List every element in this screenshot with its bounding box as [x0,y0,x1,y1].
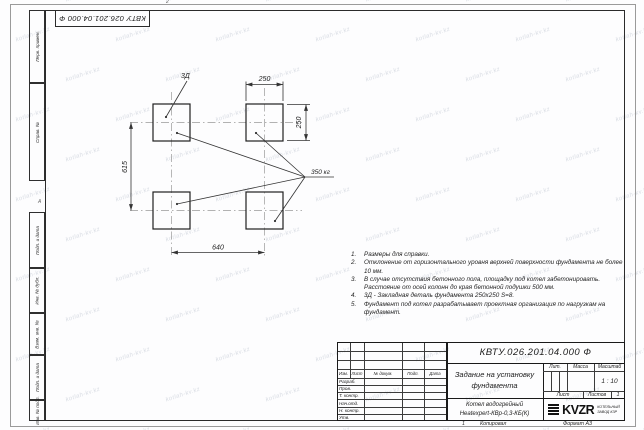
note-text: 3Д - Закладная деталь фундамента 250х250… [364,292,625,300]
watermark-text: kotlah-kv.kz [115,427,151,430]
watermark-text: kotlah-kv.kz [0,67,1,84]
note-item: 2.Отклонение от горизонтального уровня в… [351,259,625,276]
watermark-text: kotlah-kv.kz [15,427,51,430]
watermark-text: kotlah-kv.kz [315,427,351,430]
note-item: 5.Фундамент под котел разрабатывает прое… [351,301,625,318]
left-zone-letter: А [38,199,41,205]
watermark-text: kotlah-kv.kz [215,427,251,430]
watermark-text: kotlah-kv.kz [165,0,201,3]
watermark-text: kotlah-kv.kz [0,387,1,404]
note-text: В случае отсутствия бетонного пола, площ… [364,276,625,293]
margin-box-label: Перв. примен. [35,31,40,62]
margin-box-label: Инв. № подл. [35,396,40,425]
watermark-text: kotlah-kv.kz [0,227,1,244]
watermark-text: kotlah-kv.kz [615,427,644,430]
margin-box-inv-dubl: Инв. № дубл. [29,268,45,313]
note-text: Фундамент под котел разрабатывает проект… [364,301,625,318]
note-number: 1. [351,251,364,259]
drawing-sheet: kotlah-kv.kzkotlah-kv.kzkotlah-kv.kzkotl… [0,0,644,430]
watermark-text: kotlah-kv.kz [365,0,401,3]
note-text: Отклонение от горизонтального уровня вер… [364,259,625,276]
watermark-text: kotlah-kv.kz [0,0,1,3]
footer-copied-label: Копировал [480,421,506,427]
watermark-text: kotlah-kv.kz [415,427,451,430]
watermark-text: kotlah-kv.kz [465,0,501,3]
title-block: Изм. Лист № докум. Подп. Дата Разраб. Пр… [337,342,625,421]
note-number: 4. [351,292,364,300]
margin-box-perv-primen: Перв. примен. [29,10,45,83]
watermark-text: kotlah-kv.kz [265,0,301,3]
margin-box-vzam-inv: Взам. инв. № [29,313,45,355]
margin-box-label: Подп. и дата [35,226,40,255]
note-number: 2. [351,259,364,276]
margin-box-label: Взам. инв. № [35,320,40,348]
margin-box-label: Инв. № дубл. [35,276,40,304]
margin-box-podp-data-2: Подп. и дата [29,355,45,400]
margin-box-podp-data-1: Подп. и дата [29,212,45,268]
margin-box-sprav-no: Справ. № [29,83,45,181]
watermark-text: kotlah-kv.kz [0,307,1,324]
watermark-text: kotlah-kv.kz [0,147,1,164]
note-number: 3. [351,276,364,293]
footer-format-label: Формат А3 [563,421,592,427]
margin-box-label: Справ. № [35,122,40,143]
top-doc-number-text: КВТУ 026.201.04.000 Ф [59,14,146,23]
watermark-text: kotlah-kv.kz [65,0,101,3]
watermark-text: kotlah-kv.kz [565,0,601,3]
titleblock-border [337,342,625,421]
note-item: 4.3Д - Закладная деталь фундамента 250х2… [351,292,625,300]
note-item: 3.В случае отсутствия бетонного пола, пл… [351,276,625,293]
top-doc-number-stamp: КВТУ 026.201.04.000 Ф [55,10,150,27]
margin-box-label: Подп. и дата [35,363,40,392]
notes-list: 1.Размеры для справки. 2.Отклонение от г… [351,251,625,317]
footer-copy-note: 1 [462,421,465,427]
note-number: 5. [351,301,364,318]
top-zone-number: 2 [166,0,169,5]
watermark-text: kotlah-kv.kz [515,427,551,430]
margin-box-inv-podl: Инв. № подл. [29,400,45,421]
